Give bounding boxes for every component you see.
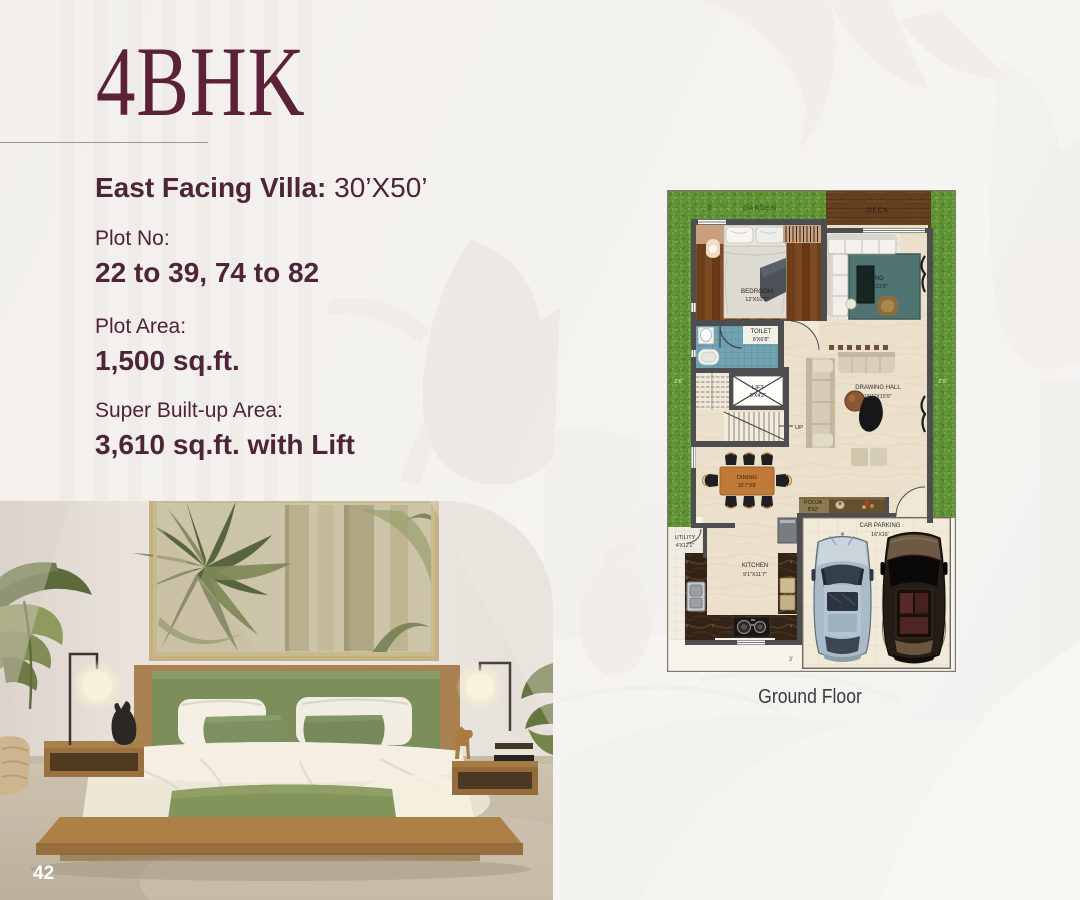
svg-text:2'6": 2'6" [938, 379, 947, 385]
svg-text:DRAWING HALL: DRAWING HALL [855, 385, 901, 391]
svg-text:3': 3' [789, 657, 793, 663]
svg-text:8'X2': 8'X2' [808, 507, 819, 513]
svg-text:15'1"X15'9": 15'1"X15'9" [864, 394, 892, 400]
svg-text:CAR PARKING: CAR PARKING [860, 523, 901, 529]
svg-text:3': 3' [708, 206, 712, 212]
svg-text:TOILET: TOILET [751, 329, 772, 335]
svg-text:BEDROOM: BEDROOM [741, 288, 773, 295]
svg-text:10'7"X8': 10'7"X8' [738, 483, 757, 489]
svg-text:2'6": 2'6" [674, 379, 683, 385]
svg-text:POOJA: POOJA [804, 500, 823, 506]
svg-text:DECK: DECK [867, 207, 889, 214]
svg-text:8'X6'8": 8'X6'8" [753, 337, 770, 343]
svg-text:16'X16': 16'X16' [871, 532, 889, 538]
svg-text:UTILITY: UTILITY [675, 535, 696, 541]
svg-text:10'7"X11'9": 10'7"X11'9" [860, 284, 887, 290]
svg-text:LIFT: LIFT [752, 385, 764, 391]
svg-text:12'X10'2": 12'X10'2" [745, 297, 768, 303]
svg-text:KITCHEN: KITCHEN [742, 563, 768, 569]
svg-text:4'X12'1": 4'X12'1" [676, 543, 694, 549]
svg-text:9'1"X11'7": 9'1"X11'7" [743, 572, 767, 578]
svg-text:LIVING: LIVING [864, 276, 884, 282]
svg-text:5'X4'2": 5'X4'2" [750, 393, 766, 399]
svg-text:UP: UP [795, 425, 803, 431]
svg-text:42: 42 [33, 863, 54, 884]
svg-text:GARDEN: GARDEN [743, 205, 777, 212]
svg-text:DINING: DINING [737, 475, 758, 481]
